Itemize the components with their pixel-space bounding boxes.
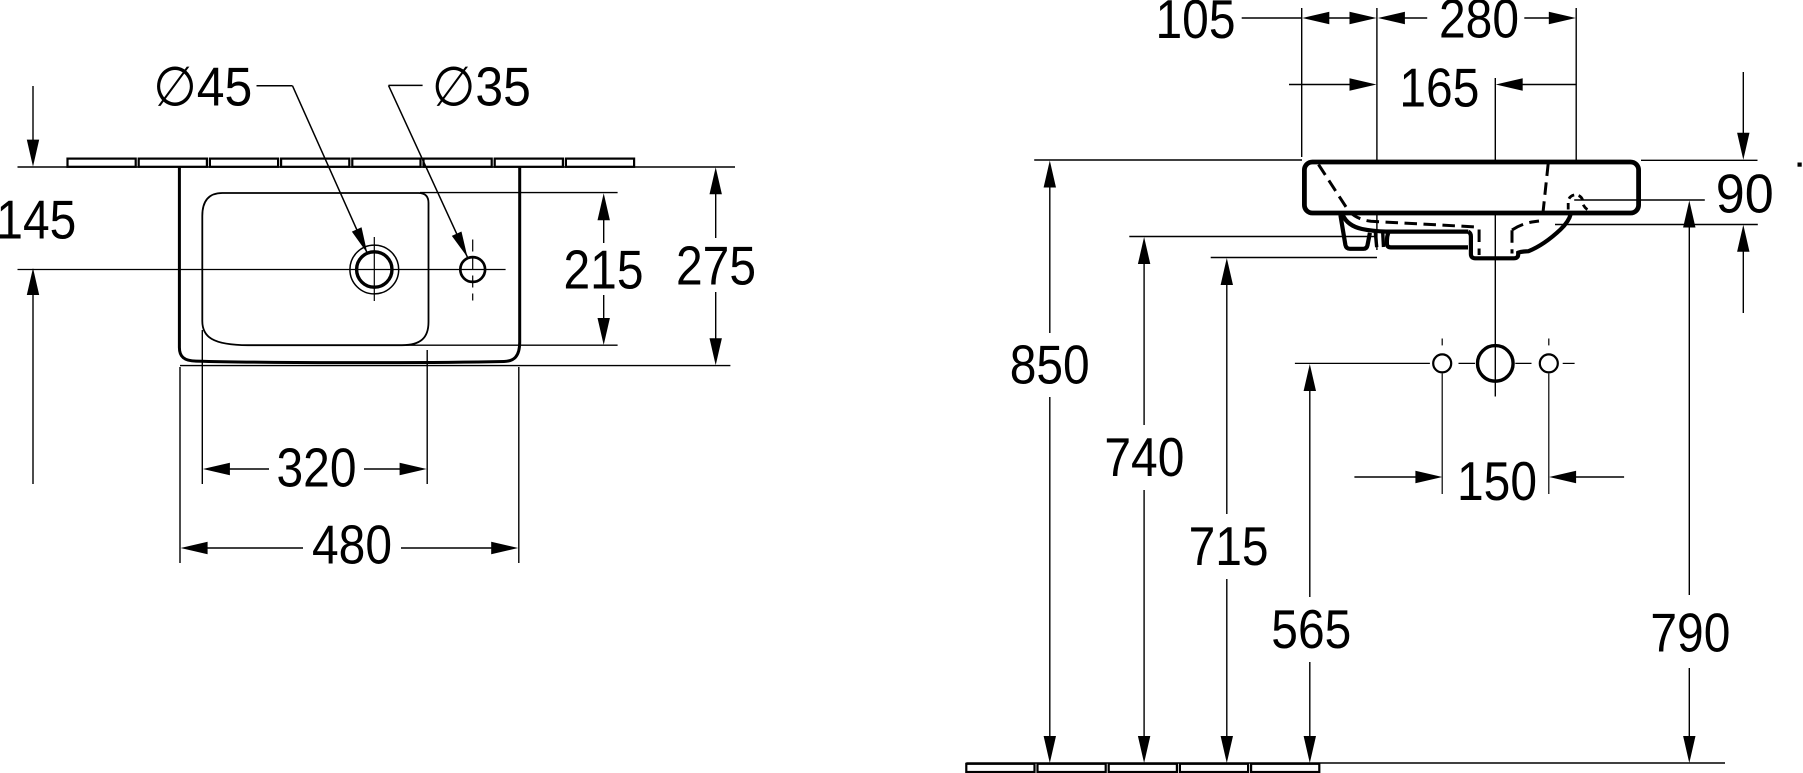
svg-text:275: 275 (676, 235, 756, 297)
svg-text:790: 790 (1650, 601, 1730, 663)
svg-text:715: 715 (1189, 515, 1269, 577)
svg-text:165: 165 (1399, 56, 1479, 118)
svg-text:320: 320 (277, 436, 357, 498)
svg-text:565: 565 (1271, 598, 1351, 660)
svg-text:280: 280 (1439, 0, 1519, 49)
svg-text:∅35: ∅35 (432, 56, 531, 118)
svg-text:215: 215 (564, 239, 644, 301)
svg-text:850: 850 (1010, 333, 1090, 395)
svg-text:145: 145 (0, 189, 76, 251)
svg-text:740: 740 (1104, 426, 1184, 488)
svg-text:480: 480 (312, 514, 392, 576)
svg-text:90: 90 (1716, 162, 1774, 224)
svg-text:150: 150 (1457, 450, 1537, 512)
svg-text:∅45: ∅45 (153, 56, 252, 118)
svg-text:105: 105 (1156, 0, 1236, 50)
